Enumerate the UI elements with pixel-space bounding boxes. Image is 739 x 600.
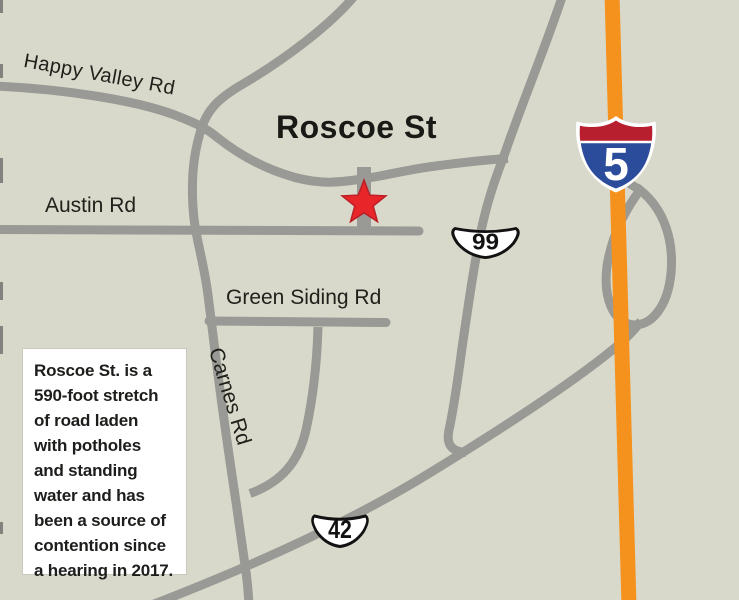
caption-line: of road laden — [34, 408, 181, 433]
location-star-icon — [339, 178, 389, 228]
route-99-number: 99 — [472, 230, 499, 255]
caption-line: and standing — [34, 458, 181, 483]
caption-line: a hearing in 2017. — [34, 558, 181, 583]
road-austin-rd — [0, 230, 419, 232]
road-interstate-5 — [612, 0, 629, 600]
interstate-5-shield-icon: 5 — [574, 113, 658, 197]
locator-map: Happy Valley Rd Austin Rd Roscoe St Gree… — [0, 0, 739, 600]
caption-line: contention since — [34, 533, 181, 558]
label-roscoe-st: Roscoe St — [276, 109, 437, 146]
label-austin-rd: Austin Rd — [45, 194, 136, 218]
caption-line: with potholes — [34, 433, 181, 458]
route-42-number: 42 — [328, 515, 352, 543]
caption-box: Roscoe St. is a 590-foot stretch of road… — [22, 348, 187, 575]
route-99-shield-icon: 99 — [451, 219, 520, 259]
route-42-shield-icon: 42 — [311, 506, 369, 548]
caption-line: been a source of — [34, 508, 181, 533]
caption-line: water and has — [34, 483, 181, 508]
caption-line: 590-foot stretch — [34, 383, 181, 408]
caption-line: Roscoe St. is a — [34, 358, 181, 383]
label-green-siding-rd: Green Siding Rd — [226, 286, 381, 310]
road-green-siding-rd — [209, 321, 386, 323]
road-branch-curve — [250, 327, 318, 494]
interstate-5-number: 5 — [603, 138, 629, 190]
